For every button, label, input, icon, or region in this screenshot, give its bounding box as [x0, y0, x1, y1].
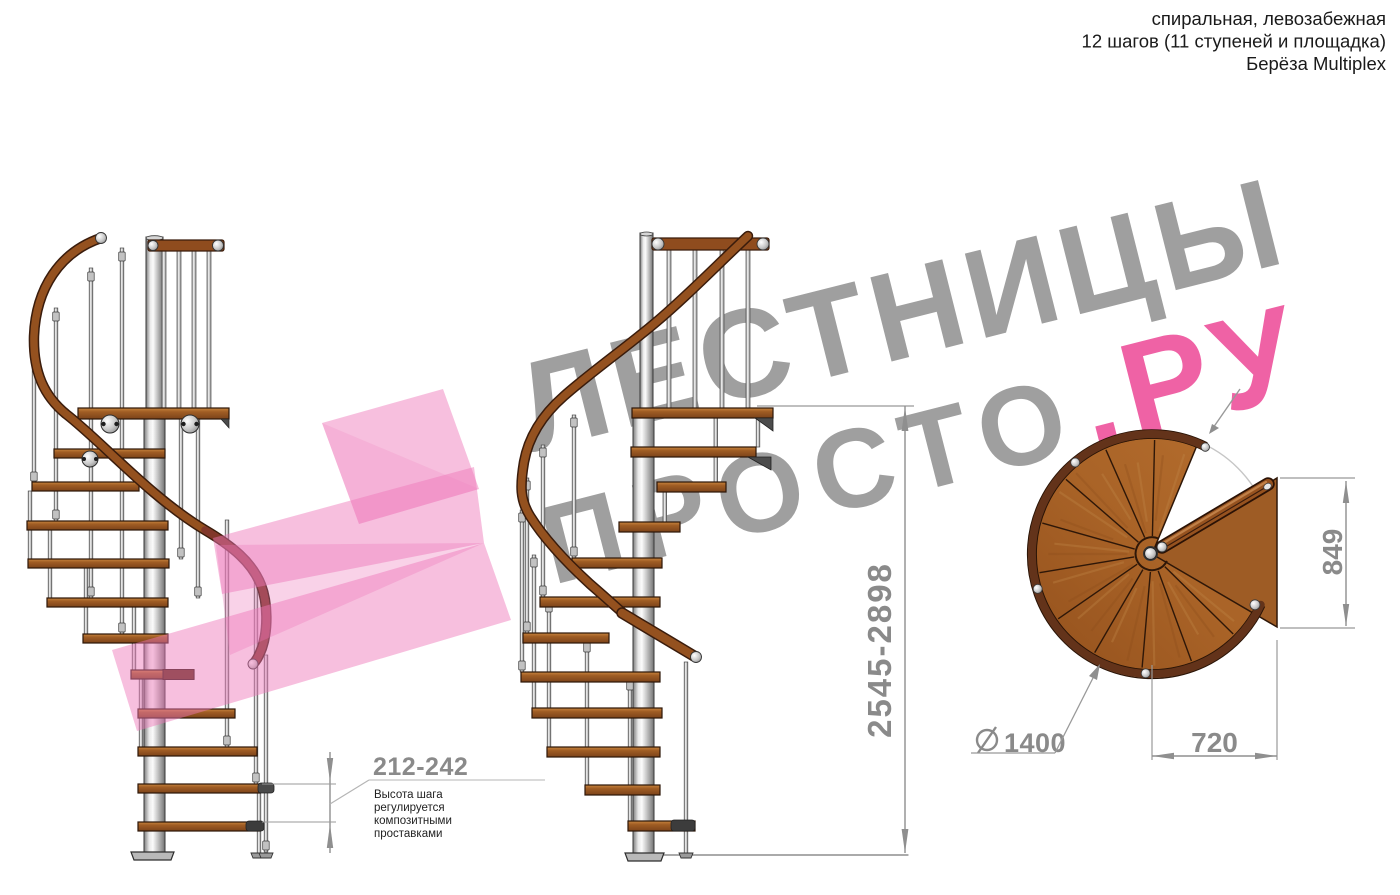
svg-text:композитными: композитными	[374, 815, 452, 827]
svg-text:Берёза Multiplex: Берёза Multiplex	[1246, 53, 1387, 74]
svg-text:2545-2898: 2545-2898	[861, 562, 898, 738]
svg-text:212-242: 212-242	[373, 753, 468, 781]
svg-text:12 шагов (11 ступеней и площад: 12 шагов (11 ступеней и площадка)	[1082, 31, 1386, 52]
svg-text:Высота шага: Высота шага	[374, 789, 443, 801]
svg-text:720: 720	[1191, 727, 1238, 758]
svg-text:849: 849	[1317, 529, 1348, 576]
svg-text:проставками: проставками	[374, 828, 442, 840]
svg-text:спиральная, левозабежная: спиральная, левозабежная	[1152, 8, 1386, 29]
svg-text:регулируется: регулируется	[374, 802, 445, 814]
